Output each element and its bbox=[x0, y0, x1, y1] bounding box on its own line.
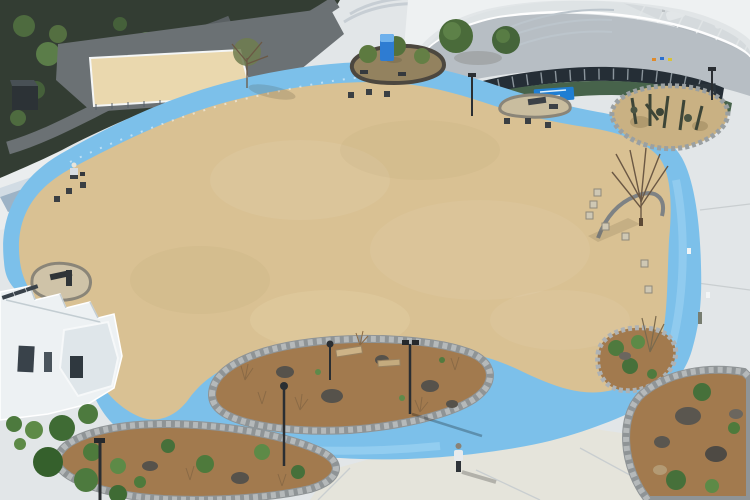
island-bench-top bbox=[500, 95, 570, 117]
aerial-photo bbox=[0, 0, 750, 500]
doorway bbox=[17, 346, 34, 373]
island-bench-left bbox=[32, 263, 91, 300]
shed bbox=[10, 80, 38, 110]
bollard bbox=[698, 312, 702, 324]
island-rock-corner bbox=[626, 370, 750, 500]
bench bbox=[378, 359, 400, 367]
doorway bbox=[70, 356, 83, 378]
